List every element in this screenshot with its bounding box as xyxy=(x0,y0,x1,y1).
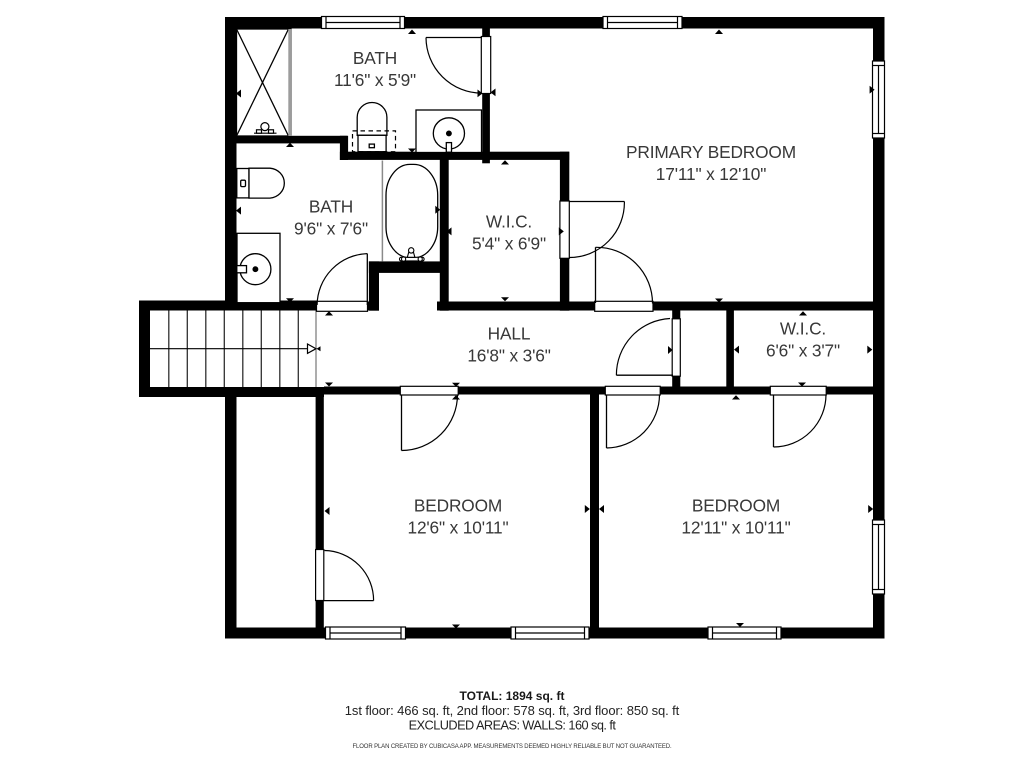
svg-text:6'6" x 3'7": 6'6" x 3'7" xyxy=(766,341,840,361)
svg-text:BATH: BATH xyxy=(353,48,397,68)
svg-text:9'6" x 7'6": 9'6" x 7'6" xyxy=(294,219,368,239)
svg-text:11'6" x 5'9": 11'6" x 5'9" xyxy=(334,70,416,90)
svg-text:16'8" x 3'6": 16'8" x 3'6" xyxy=(467,346,550,366)
svg-text:12'11" x 10'11": 12'11" x 10'11" xyxy=(681,518,790,538)
svg-text:12'6" x 10'11": 12'6" x 10'11" xyxy=(407,518,508,538)
svg-text:FLOOR PLAN CREATED BY CUBICASA: FLOOR PLAN CREATED BY CUBICASA APP. MEAS… xyxy=(352,744,672,750)
svg-text:1st floor: 466 sq. ft, 2nd flo: 1st floor: 466 sq. ft, 2nd floor: 578 sq… xyxy=(345,703,680,718)
svg-text:BATH: BATH xyxy=(309,197,353,217)
svg-text:EXCLUDED AREAS: WALLS: 160 sq.: EXCLUDED AREAS: WALLS: 160 sq. ft xyxy=(409,718,617,733)
svg-text:TOTAL: 1894 sq. ft: TOTAL: 1894 sq. ft xyxy=(460,689,565,703)
svg-text:W.I.C.: W.I.C. xyxy=(780,319,826,339)
svg-text:17'11" x 12'10": 17'11" x 12'10" xyxy=(656,164,766,184)
svg-text:W.I.C.: W.I.C. xyxy=(486,212,532,232)
svg-text:PRIMARY BEDROOM: PRIMARY BEDROOM xyxy=(626,142,796,162)
svg-text:BEDROOM: BEDROOM xyxy=(692,496,780,516)
svg-text:5'4" x 6'9": 5'4" x 6'9" xyxy=(472,234,546,254)
svg-text:BEDROOM: BEDROOM xyxy=(414,496,502,516)
svg-text:HALL: HALL xyxy=(488,324,531,344)
